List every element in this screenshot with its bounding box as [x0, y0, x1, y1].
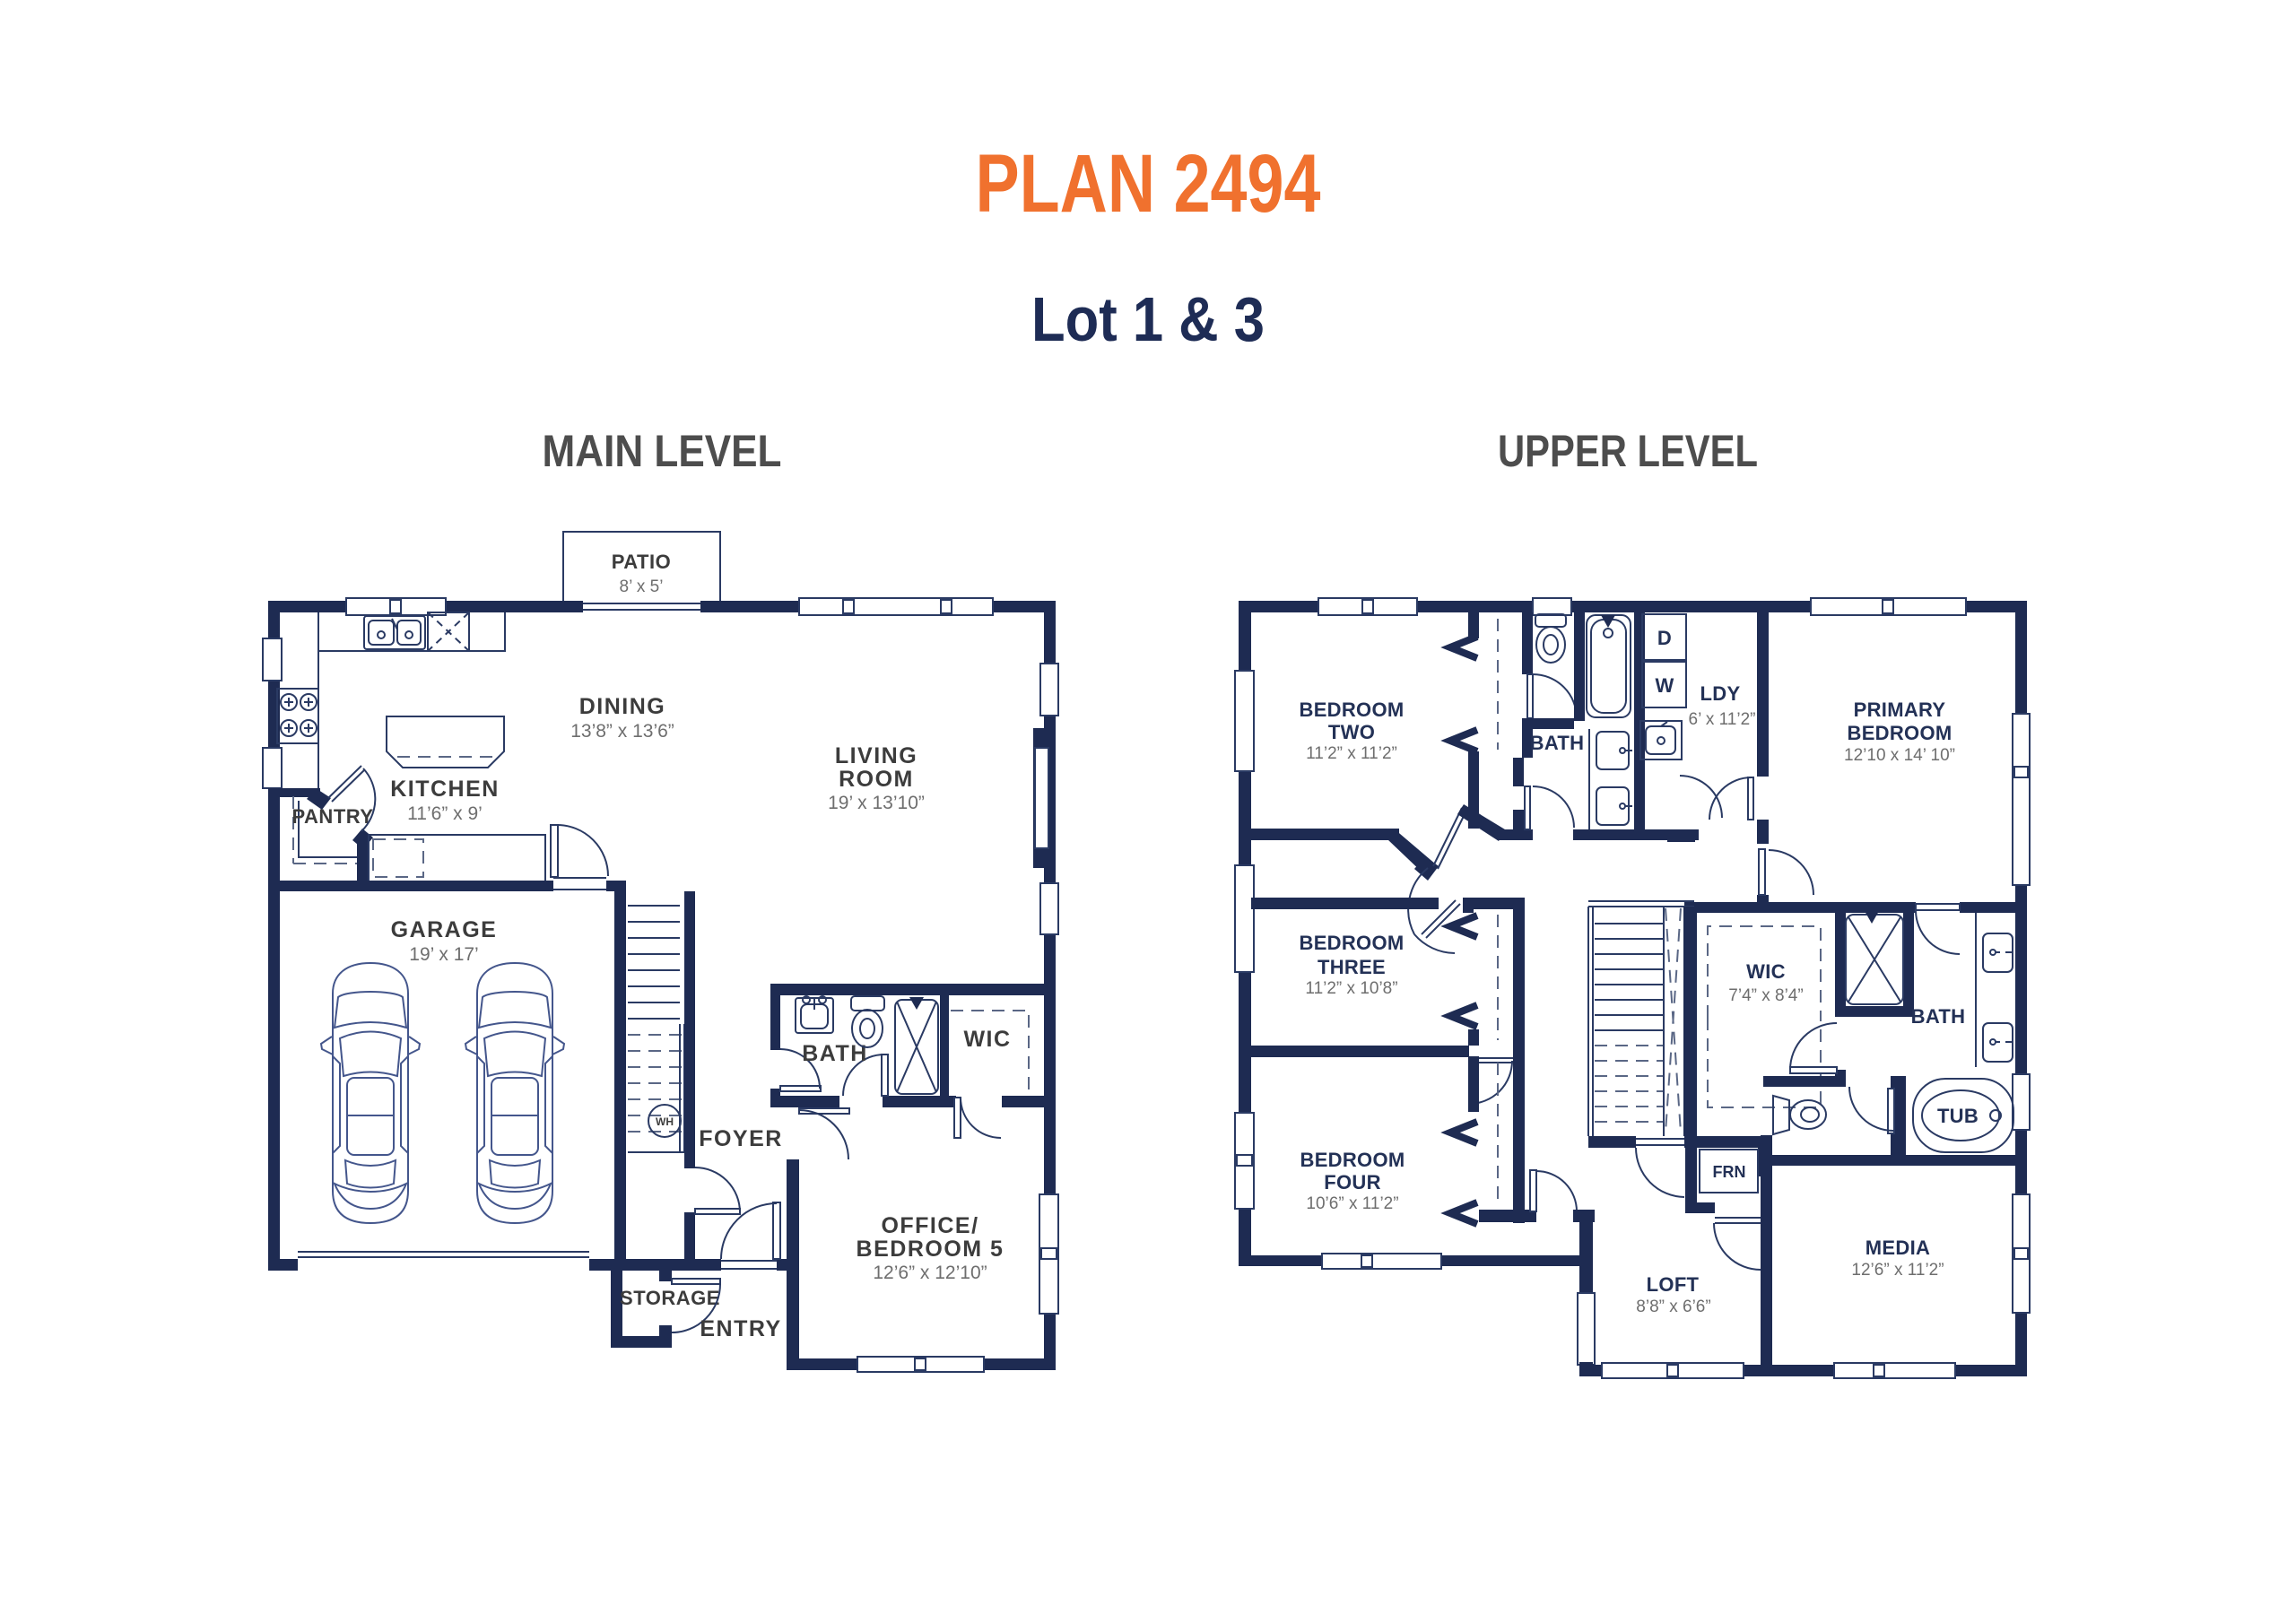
svg-text:FOUR: FOUR [1324, 1171, 1381, 1193]
svg-text:8’ x 5’: 8’ x 5’ [620, 577, 664, 596]
svg-text:BATH: BATH [1530, 732, 1585, 754]
svg-text:LIVING: LIVING [835, 743, 918, 768]
svg-text:PATIO: PATIO [612, 551, 671, 573]
svg-text:8’8” x 6’6”: 8’8” x 6’6” [1636, 1298, 1710, 1316]
svg-text:W: W [1655, 674, 1674, 697]
svg-text:FOYER: FOYER [699, 1126, 783, 1151]
svg-text:11’2” x 11’2”: 11’2” x 11’2” [1306, 744, 1397, 763]
svg-text:PRIMARY: PRIMARY [1854, 699, 1946, 721]
svg-text:10’6” x 11’2”: 10’6” x 11’2” [1306, 1194, 1398, 1213]
svg-text:7’4” x 8’4”: 7’4” x 8’4” [1728, 986, 1803, 1005]
svg-text:BATH: BATH [802, 1041, 868, 1066]
svg-text:WIC: WIC [1746, 960, 1786, 983]
svg-text:TUB: TUB [1937, 1105, 1979, 1127]
svg-text:PLAN 2494: PLAN 2494 [976, 138, 1321, 230]
svg-text:BEDROOM: BEDROOM [1300, 1149, 1405, 1171]
svg-text:THREE: THREE [1318, 956, 1386, 978]
svg-text:12’10 x 14’ 10”: 12’10 x 14’ 10” [1844, 746, 1955, 765]
svg-text:6’ x 11’2”: 6’ x 11’2” [1689, 710, 1756, 729]
svg-text:12’6” x 11’2”: 12’6” x 11’2” [1851, 1261, 1944, 1280]
svg-text:19’ x 17’: 19’ x 17’ [409, 944, 478, 965]
svg-text:BATH: BATH [1911, 1005, 1966, 1028]
svg-text:WH: WH [656, 1115, 674, 1128]
svg-text:PANTRY: PANTRY [292, 805, 374, 828]
svg-text:BEDROOM: BEDROOM [1300, 932, 1405, 954]
svg-text:MAIN LEVEL: MAIN LEVEL [543, 426, 782, 476]
svg-text:LDY: LDY [1700, 682, 1741, 705]
svg-text:19’ x 13’10”: 19’ x 13’10” [828, 793, 925, 813]
svg-text:FRN: FRN [1713, 1163, 1746, 1181]
svg-text:D: D [1657, 627, 1672, 649]
svg-text:BEDROOM: BEDROOM [1848, 722, 1952, 744]
svg-text:ROOM: ROOM [839, 767, 914, 792]
svg-text:Lot 1 & 3: Lot 1 & 3 [1031, 284, 1265, 354]
svg-text:DINING: DINING [579, 694, 666, 719]
svg-text:OFFICE/: OFFICE/ [881, 1213, 978, 1238]
svg-text:ENTRY: ENTRY [700, 1316, 781, 1341]
svg-text:TWO: TWO [1328, 721, 1375, 743]
svg-text:KITCHEN: KITCHEN [390, 777, 500, 802]
svg-text:BEDROOM: BEDROOM [1300, 699, 1405, 721]
svg-text:LOFT: LOFT [1647, 1273, 1700, 1296]
svg-text:STORAGE: STORAGE [620, 1287, 720, 1309]
svg-text:11’2” x 10’8”: 11’2” x 10’8” [1305, 979, 1397, 998]
svg-text:GARAGE: GARAGE [391, 917, 498, 942]
svg-text:BEDROOM 5: BEDROOM 5 [857, 1237, 1004, 1262]
svg-text:11’6” x 9’: 11’6” x 9’ [407, 803, 483, 824]
svg-text:12’6” x 12’10”: 12’6” x 12’10” [873, 1263, 987, 1283]
svg-text:WIC: WIC [963, 1027, 1011, 1052]
svg-text:13’8” x 13’6”: 13’8” x 13’6” [570, 721, 674, 742]
svg-text:UPPER LEVEL: UPPER LEVEL [1498, 426, 1758, 476]
svg-text:MEDIA: MEDIA [1865, 1237, 1930, 1259]
